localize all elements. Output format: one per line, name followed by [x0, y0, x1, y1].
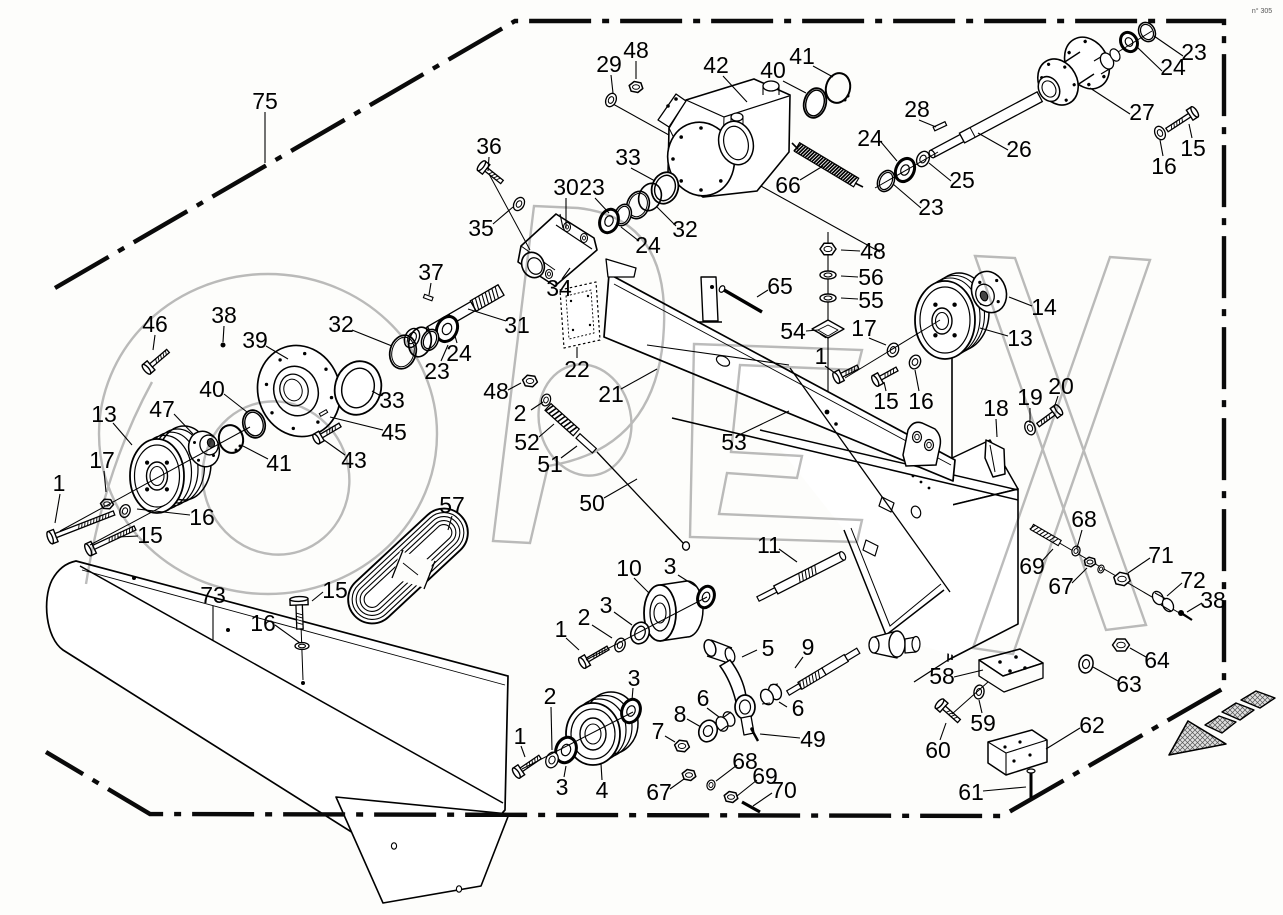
svg-text:47: 47 [149, 396, 175, 422]
svg-text:3: 3 [600, 592, 613, 618]
svg-text:2: 2 [514, 400, 527, 426]
svg-text:3: 3 [628, 665, 641, 691]
svg-text:33: 33 [615, 144, 641, 170]
svg-text:24: 24 [446, 340, 472, 366]
svg-text:71: 71 [1148, 542, 1174, 568]
svg-text:n° 305: n° 305 [1252, 7, 1272, 15]
svg-text:34: 34 [546, 275, 572, 301]
svg-text:63: 63 [1116, 671, 1142, 697]
svg-text:65: 65 [767, 273, 793, 299]
svg-text:3: 3 [664, 553, 677, 579]
svg-text:17: 17 [851, 315, 877, 341]
svg-text:52: 52 [514, 429, 540, 455]
svg-text:1: 1 [53, 470, 66, 496]
svg-text:35: 35 [468, 215, 494, 241]
svg-text:38: 38 [1200, 587, 1226, 613]
svg-text:23: 23 [579, 174, 605, 200]
svg-text:57: 57 [439, 492, 465, 518]
svg-text:31: 31 [504, 312, 530, 338]
svg-text:3: 3 [556, 774, 569, 800]
svg-text:38: 38 [211, 302, 237, 328]
svg-text:1: 1 [514, 723, 527, 749]
svg-text:13: 13 [1007, 325, 1033, 351]
svg-text:62: 62 [1079, 712, 1105, 738]
svg-text:29: 29 [596, 51, 622, 77]
svg-text:16: 16 [908, 388, 934, 414]
svg-text:2: 2 [544, 683, 557, 709]
svg-text:70: 70 [771, 777, 797, 803]
svg-text:67: 67 [1048, 573, 1074, 599]
svg-text:68: 68 [1071, 506, 1097, 532]
svg-text:75: 75 [252, 88, 278, 114]
svg-text:66: 66 [775, 172, 801, 198]
svg-text:48: 48 [483, 378, 509, 404]
svg-text:11: 11 [757, 532, 781, 558]
svg-text:22: 22 [564, 356, 590, 382]
svg-text:15: 15 [137, 522, 163, 548]
svg-text:67: 67 [646, 779, 672, 805]
svg-text:26: 26 [1006, 136, 1032, 162]
svg-text:33: 33 [379, 387, 405, 413]
svg-text:42: 42 [703, 52, 729, 78]
svg-text:4: 4 [596, 777, 609, 803]
svg-text:1: 1 [555, 616, 568, 642]
svg-text:25: 25 [949, 167, 975, 193]
svg-text:41: 41 [789, 43, 815, 69]
svg-text:16: 16 [1151, 153, 1177, 179]
svg-text:45: 45 [381, 419, 407, 445]
svg-text:58: 58 [929, 663, 955, 689]
svg-text:30: 30 [553, 174, 579, 200]
svg-text:5: 5 [762, 635, 775, 661]
svg-text:2: 2 [578, 604, 591, 630]
svg-text:27: 27 [1129, 99, 1155, 125]
svg-text:10: 10 [616, 555, 642, 581]
svg-text:18: 18 [983, 395, 1009, 421]
svg-text:40: 40 [760, 57, 786, 83]
svg-text:64: 64 [1144, 647, 1170, 673]
svg-text:6: 6 [697, 685, 710, 711]
svg-text:39: 39 [242, 327, 268, 353]
svg-text:49: 49 [800, 726, 826, 752]
svg-text:7: 7 [652, 718, 665, 744]
svg-text:13: 13 [91, 401, 117, 427]
svg-text:24: 24 [857, 125, 883, 151]
svg-text:36: 36 [476, 133, 502, 159]
svg-text:6: 6 [792, 695, 805, 721]
svg-text:1: 1 [815, 343, 828, 369]
svg-text:15: 15 [873, 388, 899, 414]
svg-text:48: 48 [860, 238, 886, 264]
svg-text:24: 24 [1160, 54, 1186, 80]
svg-text:55: 55 [858, 287, 884, 313]
svg-text:28: 28 [904, 96, 930, 122]
svg-text:48: 48 [623, 37, 649, 63]
svg-text:40: 40 [199, 376, 225, 402]
svg-text:61: 61 [958, 779, 984, 805]
svg-text:37: 37 [418, 259, 444, 285]
svg-text:9: 9 [802, 634, 815, 660]
svg-text:16: 16 [250, 610, 276, 636]
svg-text:41: 41 [266, 450, 292, 476]
svg-text:60: 60 [925, 737, 951, 763]
svg-text:15: 15 [1180, 135, 1206, 161]
svg-text:50: 50 [579, 490, 605, 516]
svg-text:23: 23 [918, 194, 944, 220]
svg-text:8: 8 [674, 701, 687, 727]
svg-text:54: 54 [780, 318, 806, 344]
svg-text:32: 32 [328, 311, 354, 337]
svg-text:16: 16 [189, 504, 215, 530]
svg-text:59: 59 [970, 710, 996, 736]
svg-text:32: 32 [672, 216, 698, 242]
